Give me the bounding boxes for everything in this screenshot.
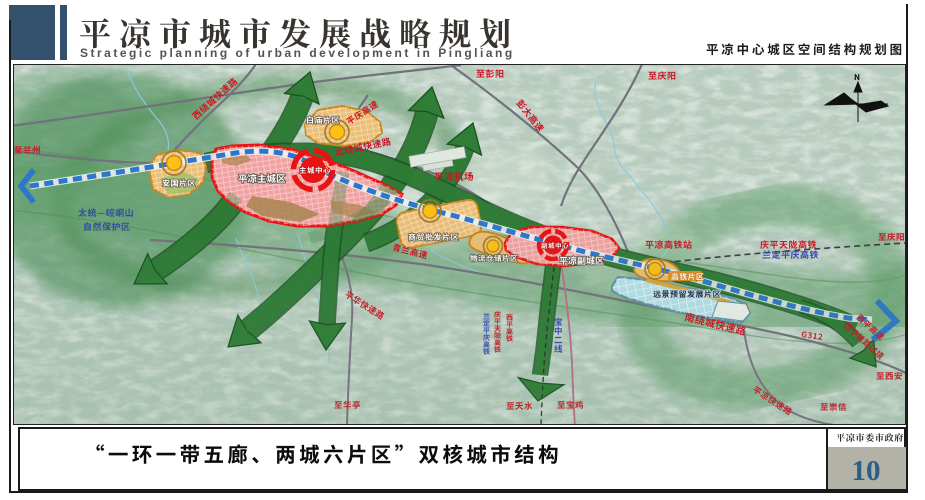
svg-text:10: 10	[852, 455, 881, 487]
